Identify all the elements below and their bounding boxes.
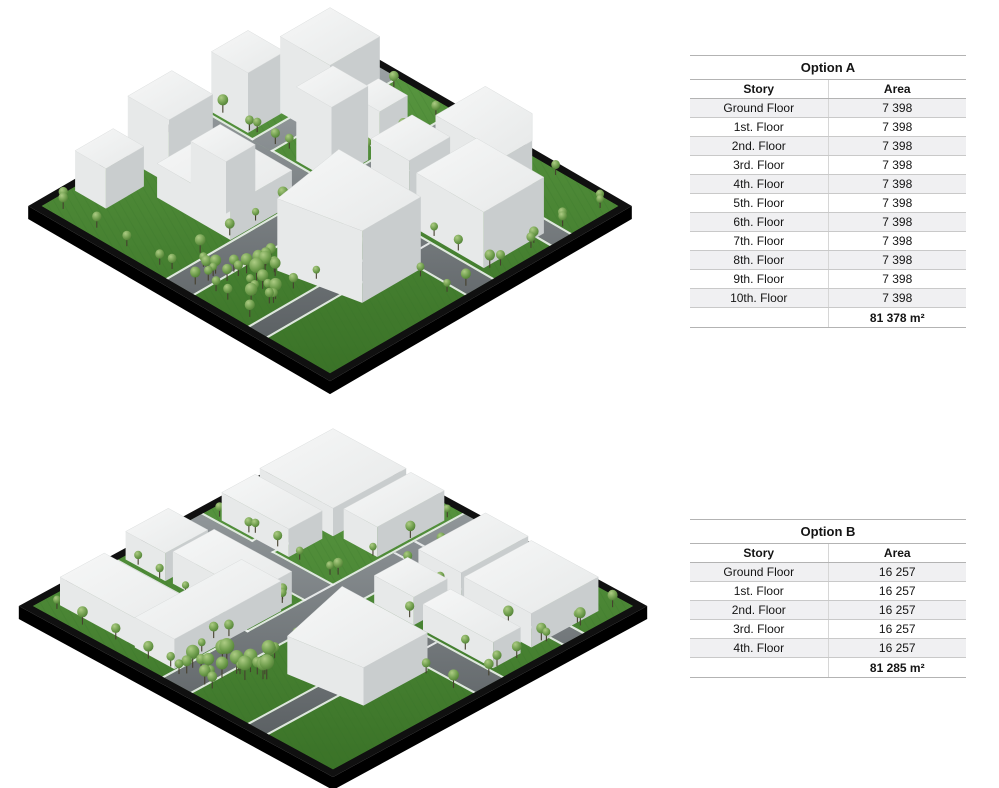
story-cell: 1st. Floor [690, 582, 828, 601]
area-cell: 16 257 [828, 601, 966, 620]
total-spacer [690, 308, 828, 328]
column-header-area: Area [828, 80, 966, 99]
area-cell: 16 257 [828, 620, 966, 639]
story-cell: 1st. Floor [690, 118, 828, 137]
total-area-value: 81 378 m² [828, 308, 966, 328]
table-row: 7th. Floor7 398 [690, 232, 966, 251]
table-row: Ground Floor16 257 [690, 563, 966, 582]
table-header-row: Story Area [690, 80, 966, 99]
page: Option A Story Area Ground Floor7 3981st… [0, 0, 999, 788]
story-cell: 3rd. Floor [690, 156, 828, 175]
story-cell: 7th. Floor [690, 232, 828, 251]
column-header-story: Story [690, 80, 828, 99]
area-cell: 7 398 [828, 213, 966, 232]
area-cell: 7 398 [828, 194, 966, 213]
total-area-value: 81 285 m² [828, 658, 966, 678]
area-cell: 7 398 [828, 137, 966, 156]
story-cell: 3rd. Floor [690, 620, 828, 639]
area-cell: 7 398 [828, 118, 966, 137]
option-b-3d-model [8, 422, 664, 788]
story-cell: 2nd. Floor [690, 601, 828, 620]
option-a-3d-svg [10, 0, 655, 402]
option-a-table: Option A Story Area Ground Floor7 3981st… [690, 55, 966, 328]
option-b-3d-svg [8, 422, 664, 788]
table-title: Option B [690, 520, 966, 544]
area-table: Option A Story Area Ground Floor7 3981st… [690, 55, 966, 328]
table-total-row: 81 378 m² [690, 308, 966, 328]
table-row: Ground Floor7 398 [690, 99, 966, 118]
story-cell: 4th. Floor [690, 639, 828, 658]
option-b-table: Option B Story Area Ground Floor16 2571s… [690, 519, 966, 678]
option-a-3d-model [10, 0, 655, 407]
area-cell: 7 398 [828, 99, 966, 118]
table-row: 5th. Floor7 398 [690, 194, 966, 213]
table-row: 8th. Floor7 398 [690, 251, 966, 270]
story-cell: 5th. Floor [690, 194, 828, 213]
table-row: 2nd. Floor16 257 [690, 601, 966, 620]
area-cell: 7 398 [828, 175, 966, 194]
area-cell: 16 257 [828, 563, 966, 582]
story-cell: 9th. Floor [690, 270, 828, 289]
story-cell: Ground Floor [690, 563, 828, 582]
story-cell: Ground Floor [690, 99, 828, 118]
table-row: 4th. Floor16 257 [690, 639, 966, 658]
area-cell: 7 398 [828, 156, 966, 175]
story-cell: 6th. Floor [690, 213, 828, 232]
area-cell: 7 398 [828, 251, 966, 270]
story-cell: 2nd. Floor [690, 137, 828, 156]
column-header-area: Area [828, 544, 966, 563]
table-title-row: Option B [690, 520, 966, 544]
table-header-row: Story Area [690, 544, 966, 563]
table-row: 1st. Floor16 257 [690, 582, 966, 601]
area-cell: 16 257 [828, 639, 966, 658]
table-row: 10th. Floor7 398 [690, 289, 966, 308]
table-total-row: 81 285 m² [690, 658, 966, 678]
table-row: 9th. Floor7 398 [690, 270, 966, 289]
table-row: 1st. Floor7 398 [690, 118, 966, 137]
table-row: 4th. Floor7 398 [690, 175, 966, 194]
table-row: 6th. Floor7 398 [690, 213, 966, 232]
area-cell: 16 257 [828, 582, 966, 601]
table-row: 3rd. Floor7 398 [690, 156, 966, 175]
table-title: Option A [690, 56, 966, 80]
total-spacer [690, 658, 828, 678]
table-body: Ground Floor16 2571st. Floor16 2572nd. F… [690, 563, 966, 658]
area-cell: 7 398 [828, 289, 966, 308]
table-body: Ground Floor7 3981st. Floor7 3982nd. Flo… [690, 99, 966, 308]
area-cell: 7 398 [828, 270, 966, 289]
table-row: 2nd. Floor7 398 [690, 137, 966, 156]
area-table: Option B Story Area Ground Floor16 2571s… [690, 519, 966, 678]
story-cell: 10th. Floor [690, 289, 828, 308]
column-header-story: Story [690, 544, 828, 563]
area-cell: 7 398 [828, 232, 966, 251]
table-row: 3rd. Floor16 257 [690, 620, 966, 639]
table-title-row: Option A [690, 56, 966, 80]
story-cell: 8th. Floor [690, 251, 828, 270]
story-cell: 4th. Floor [690, 175, 828, 194]
